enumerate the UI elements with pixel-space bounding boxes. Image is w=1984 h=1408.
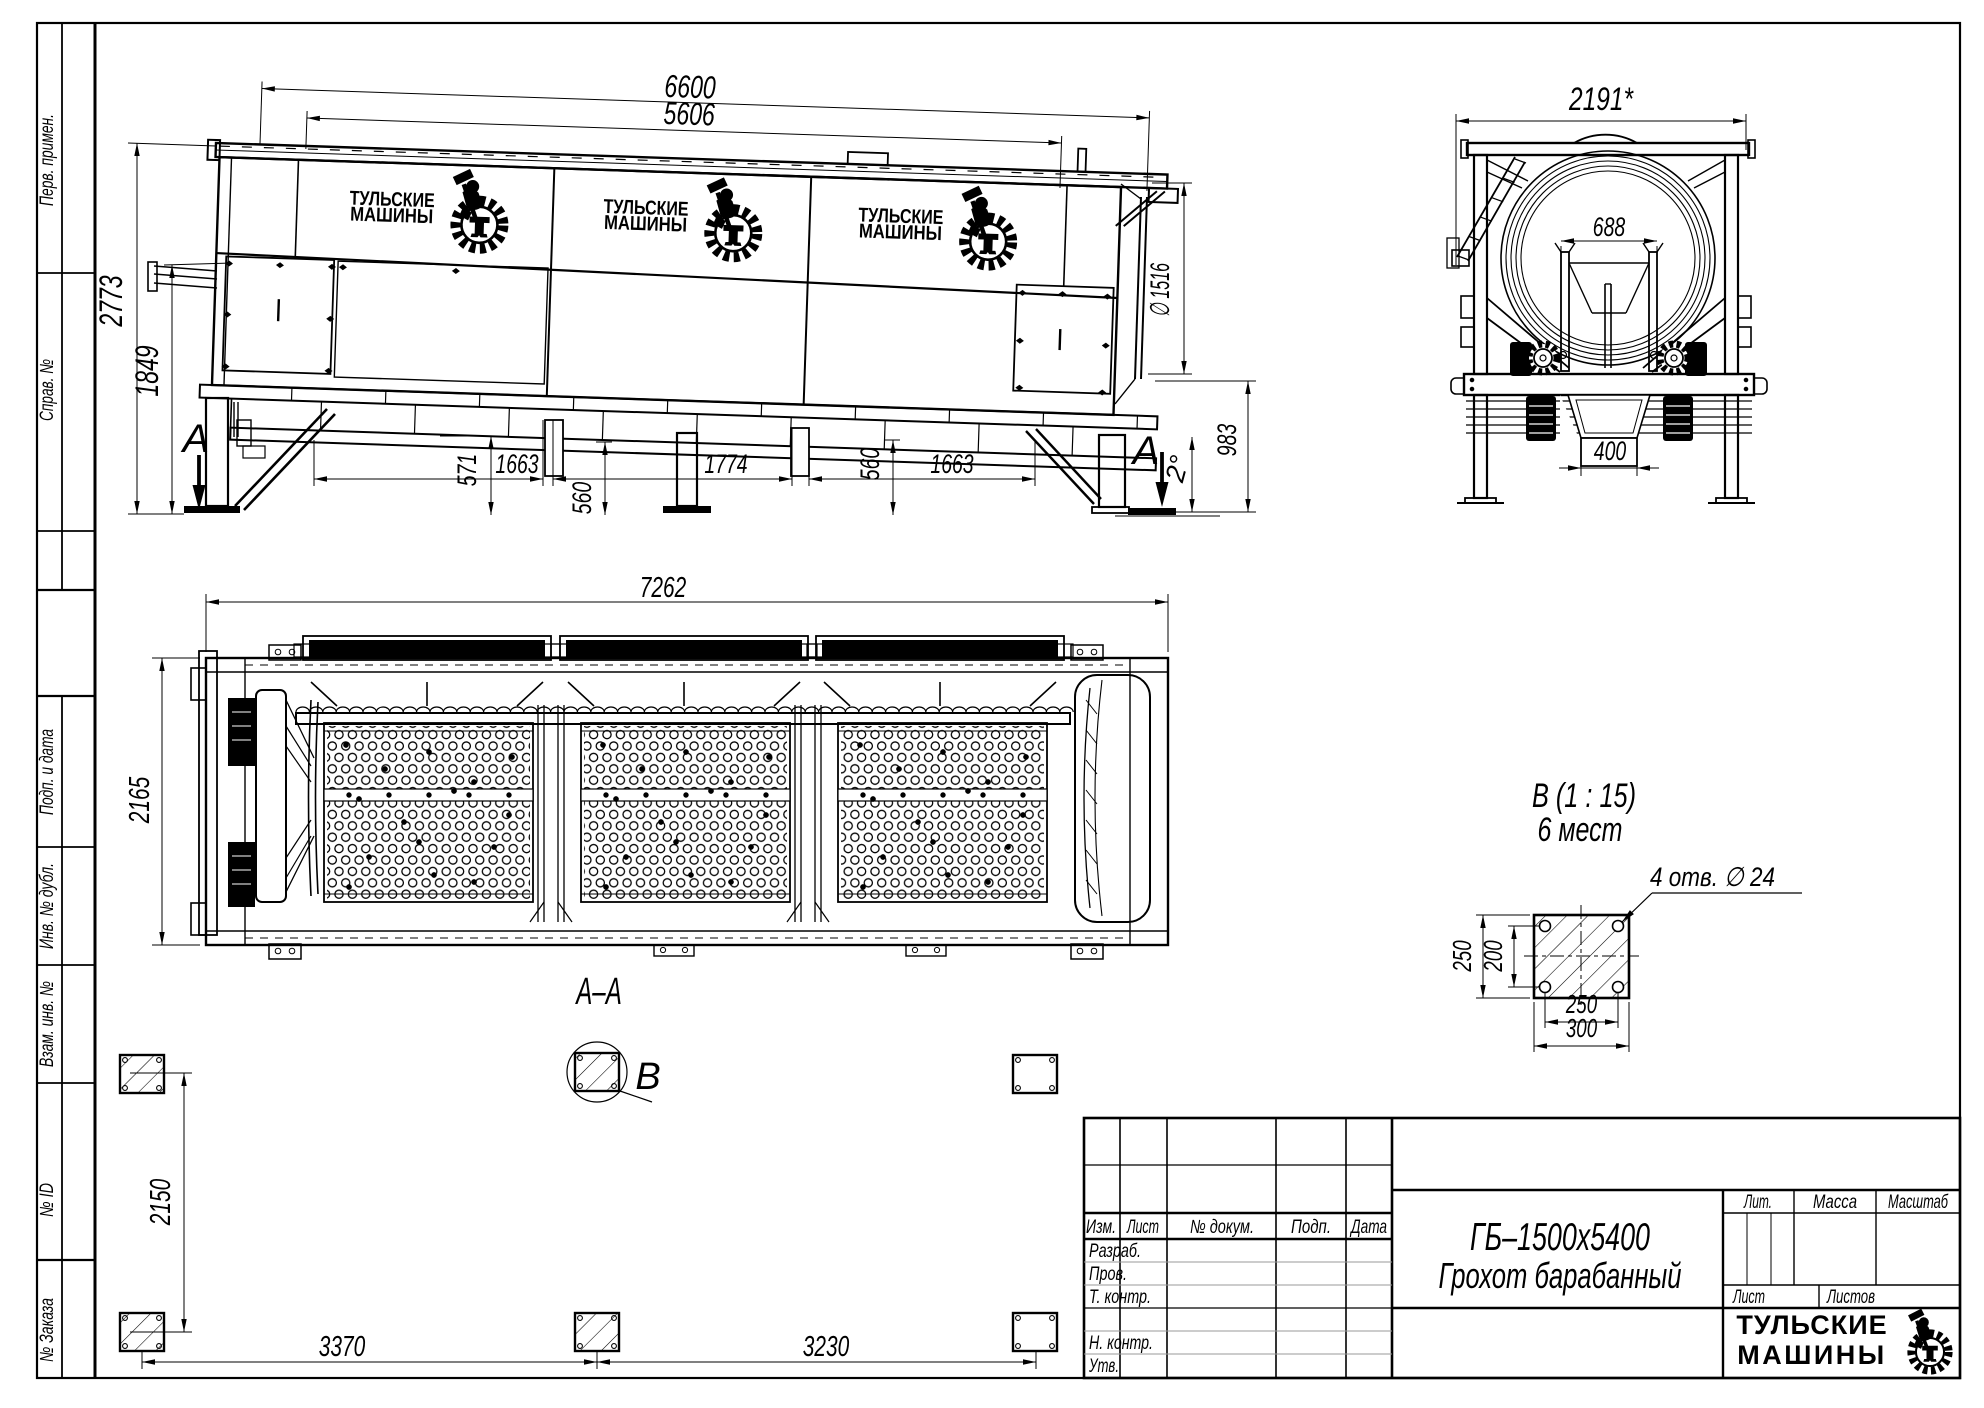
svg-text:Грохот барабанный: Грохот барабанный bbox=[1439, 1255, 1682, 1296]
svg-text:Взам. инв. №: Взам. инв. № bbox=[37, 981, 58, 1067]
svg-text:6 мест: 6 мест bbox=[1538, 811, 1623, 849]
svg-text:2165: 2165 bbox=[124, 776, 156, 824]
svg-text:Пров.: Пров. bbox=[1089, 1264, 1127, 1285]
svg-text:688: 688 bbox=[1593, 212, 1625, 242]
svg-text:3370: 3370 bbox=[319, 1331, 365, 1363]
svg-text:2773: 2773 bbox=[93, 275, 129, 327]
svg-text:МАШИНЫ: МАШИНЫ bbox=[859, 220, 943, 245]
svg-text:3230: 3230 bbox=[803, 1331, 849, 1363]
svg-text:1663: 1663 bbox=[930, 449, 973, 479]
svg-text:200: 200 bbox=[1478, 940, 1508, 972]
svg-text:Подп. и дата: Подп. и дата bbox=[37, 729, 58, 815]
svg-text:МАШИНЫ: МАШИНЫ bbox=[1737, 1340, 1886, 1370]
svg-text:В (1 : 15): В (1 : 15) bbox=[1532, 777, 1636, 815]
svg-text:№ Заказа: № Заказа bbox=[37, 1298, 58, 1362]
svg-text:400: 400 bbox=[1594, 436, 1626, 466]
svg-text:4 отв. ∅ 24: 4 отв. ∅ 24 bbox=[1650, 862, 1775, 892]
svg-text:Подп.: Подп. bbox=[1291, 1217, 1331, 1238]
svg-text:Изм.: Изм. bbox=[1086, 1217, 1116, 1238]
svg-text:В: В bbox=[635, 1056, 660, 1098]
svg-text:Лист: Лист bbox=[1732, 1287, 1765, 1308]
svg-text:Листов: Листов bbox=[1826, 1287, 1875, 1308]
svg-text:№ ID: № ID bbox=[37, 1183, 58, 1217]
svg-text:571: 571 bbox=[452, 454, 482, 486]
svg-text:Т. контр.: Т. контр. bbox=[1089, 1287, 1151, 1308]
svg-text:Дата: Дата bbox=[1350, 1217, 1387, 1238]
svg-text:983: 983 bbox=[1212, 424, 1242, 456]
svg-text:1663: 1663 bbox=[495, 449, 538, 479]
svg-text:7262: 7262 bbox=[640, 572, 686, 604]
svg-text:Инв. № дубл.: Инв. № дубл. bbox=[37, 863, 58, 949]
svg-text:Разраб.: Разраб. bbox=[1089, 1241, 1141, 1262]
svg-text:МАШИНЫ: МАШИНЫ bbox=[350, 203, 434, 228]
svg-text:560: 560 bbox=[855, 448, 885, 480]
svg-text:Перв. примен.: Перв. примен. bbox=[37, 114, 58, 206]
svg-text:А–А: А–А bbox=[575, 971, 622, 1013]
svg-text:Лит.: Лит. bbox=[1743, 1192, 1772, 1213]
svg-text:2150: 2150 bbox=[145, 1179, 177, 1226]
svg-text:А: А bbox=[181, 417, 210, 461]
svg-text:300: 300 bbox=[1566, 1013, 1598, 1043]
svg-text:Масштаб: Масштаб bbox=[1888, 1192, 1949, 1213]
svg-text:А: А bbox=[1131, 429, 1160, 473]
svg-text:5606: 5606 bbox=[663, 95, 716, 133]
svg-text:Н. контр.: Н. контр. bbox=[1089, 1333, 1153, 1354]
svg-text:№ докум.: № докум. bbox=[1190, 1217, 1254, 1238]
svg-text:250: 250 bbox=[1447, 940, 1477, 972]
svg-text:ГБ–1500х5400: ГБ–1500х5400 bbox=[1470, 1216, 1650, 1259]
svg-text:Масса: Масса bbox=[1813, 1192, 1857, 1213]
svg-text:2191*: 2191* bbox=[1568, 81, 1634, 117]
svg-text:1774: 1774 bbox=[704, 449, 747, 479]
svg-text:МАШИНЫ: МАШИНЫ bbox=[604, 212, 688, 237]
svg-text:Лист: Лист bbox=[1126, 1217, 1159, 1238]
svg-text:Утв.: Утв. bbox=[1088, 1356, 1119, 1377]
svg-text:∅ 1516: ∅ 1516 bbox=[1145, 262, 1175, 317]
svg-text:1849: 1849 bbox=[129, 345, 165, 396]
svg-text:ТУЛЬСКИЕ: ТУЛЬСКИЕ bbox=[1736, 1310, 1887, 1340]
svg-text:560: 560 bbox=[567, 482, 597, 514]
svg-text:Справ. №: Справ. № bbox=[37, 359, 58, 421]
